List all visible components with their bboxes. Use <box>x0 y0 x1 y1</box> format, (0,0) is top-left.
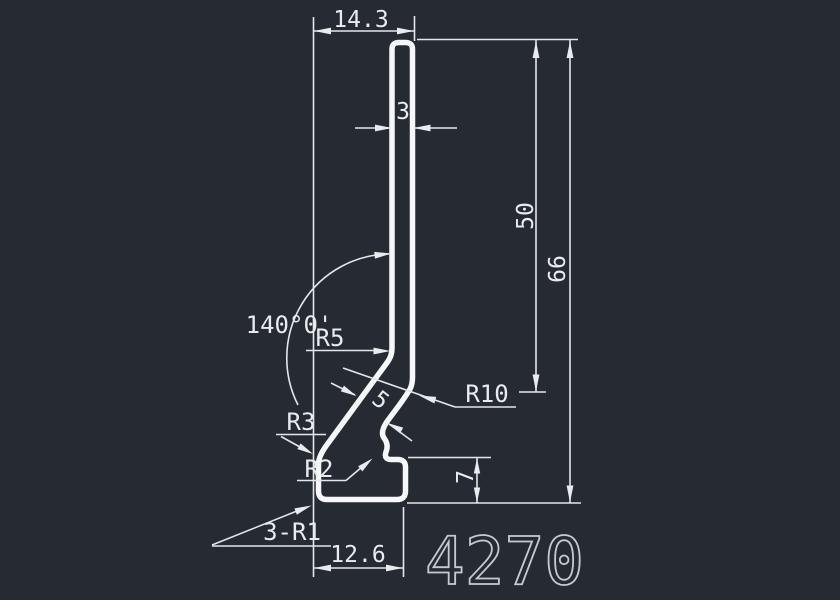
dim-slant-thickness-label: 5 <box>367 386 394 415</box>
dim-foot-width-label: 12.6 <box>330 542 385 568</box>
arrowhead <box>533 41 540 58</box>
arrowhead <box>358 456 374 471</box>
leader-r2: R2 <box>297 455 375 483</box>
dim-foot-height: 7 <box>453 458 480 504</box>
arrowhead <box>386 565 403 572</box>
leader-r5: R5 <box>306 324 391 354</box>
arrowhead <box>567 486 574 503</box>
dim-upper-height-label: 50 <box>513 202 539 230</box>
leader-r5-label: R5 <box>316 324 345 352</box>
leader-r10-label: R10 <box>465 380 508 408</box>
arrowhead <box>474 488 480 503</box>
arrowhead <box>374 348 391 355</box>
dim-upper-height: 50 <box>513 40 539 393</box>
dim-top-width: 14.3 <box>314 7 415 34</box>
arrowhead <box>418 392 436 403</box>
dim-total-height: 66 <box>545 40 573 504</box>
arrowhead <box>567 41 574 58</box>
arrowhead <box>341 386 358 399</box>
part-number: 4270 <box>425 523 584 600</box>
leader-r2-label: R2 <box>305 455 334 483</box>
extension-lines <box>314 16 582 577</box>
cad-drawing: 14.3 3 50 66 7 12.6 140°0' <box>0 0 840 600</box>
leader-r3: R3 <box>276 408 326 457</box>
arrowhead <box>374 250 392 259</box>
arrowhead <box>533 375 540 392</box>
leader-3r1-label: 3-R1 <box>263 518 321 546</box>
arrowhead <box>414 125 431 132</box>
arrowhead <box>314 565 331 572</box>
leader-r3-label: R3 <box>287 408 316 436</box>
arrowhead <box>314 28 331 35</box>
arrowhead <box>294 502 312 514</box>
part-number-text: 4270 <box>425 523 584 600</box>
cad-canvas: 14.3 3 50 66 7 12.6 140°0' <box>0 0 840 600</box>
dim-foot-height-label: 7 <box>453 470 479 484</box>
arrowhead <box>397 28 414 35</box>
dim-wall-thickness: 3 <box>355 99 457 131</box>
dim-top-width-label: 14.3 <box>333 7 388 33</box>
dim-wall-thickness-label: 3 <box>396 99 410 125</box>
dim-slant-thickness: 5 <box>331 383 412 441</box>
dim-total-height-label: 66 <box>545 255 571 283</box>
